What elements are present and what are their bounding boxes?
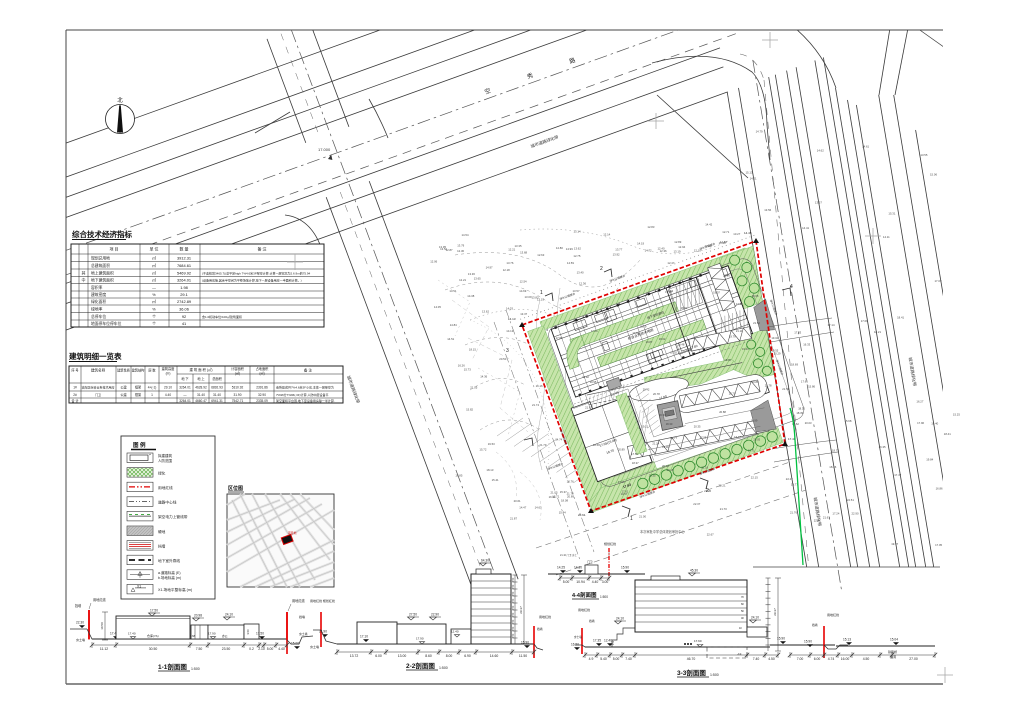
svg-text:2391.86: 2391.86 xyxy=(256,386,268,390)
svg-text:22.90: 22.90 xyxy=(431,613,439,617)
svg-text:12.63: 12.63 xyxy=(537,253,544,257)
svg-text:挡墙: 挡墙 xyxy=(589,619,595,623)
svg-text:3.50: 3.50 xyxy=(513,577,515,582)
svg-text:19.79: 19.79 xyxy=(729,335,736,339)
svg-text:19.53: 19.53 xyxy=(488,442,495,446)
svg-text:13.40: 13.40 xyxy=(577,271,584,275)
svg-text:20.73: 20.73 xyxy=(662,464,669,468)
svg-text:绿化面积: 绿化面积 xyxy=(91,299,106,304)
svg-text:序 号: 序 号 xyxy=(71,368,78,373)
svg-text:21.16: 21.16 xyxy=(701,466,708,470)
svg-text:16.00: 16.00 xyxy=(841,657,850,661)
svg-text:4F: 4F xyxy=(741,616,744,620)
svg-text:11.50: 11.50 xyxy=(519,654,527,658)
svg-text:1: 1 xyxy=(540,290,543,296)
svg-text:20.70: 20.70 xyxy=(729,392,736,396)
svg-text:个: 个 xyxy=(152,314,156,319)
svg-text:13.62: 13.62 xyxy=(482,310,489,314)
svg-text:4.50: 4.50 xyxy=(863,657,870,661)
svg-text:1-1剖面图: 1-1剖面图 xyxy=(158,662,187,671)
svg-text:(㎡): (㎡) xyxy=(259,371,264,376)
svg-text:17.55: 17.55 xyxy=(700,436,707,440)
svg-text:3.50: 3.50 xyxy=(513,626,515,631)
svg-text:5.00: 5.00 xyxy=(613,657,620,661)
svg-text:20.03: 20.03 xyxy=(805,421,812,425)
svg-text:含1.0机动车位/100㎡建筑面积: 含1.0机动车位/100㎡建筑面积 xyxy=(202,314,242,319)
svg-text:14.88: 14.88 xyxy=(720,240,727,244)
svg-text:用地红线: 用地红线 xyxy=(292,598,306,603)
svg-text:17.47: 17.47 xyxy=(734,435,741,439)
svg-text:14.13: 14.13 xyxy=(506,329,513,333)
svg-text:20.68: 20.68 xyxy=(752,294,759,298)
svg-text:10.94: 10.94 xyxy=(576,580,585,584)
svg-text:29.1: 29.1 xyxy=(180,292,188,297)
svg-text:15.86: 15.86 xyxy=(808,385,815,389)
svg-text:20.35: 20.35 xyxy=(694,424,701,428)
svg-text:1:500: 1:500 xyxy=(710,673,719,677)
svg-text:19.07: 19.07 xyxy=(713,291,720,295)
svg-text:21.63: 21.63 xyxy=(723,274,730,278)
svg-text:13.76: 13.76 xyxy=(506,261,513,265)
svg-text:a.道路标高 (E): a.道路标高 (E) xyxy=(158,570,181,575)
svg-text:14.62: 14.62 xyxy=(817,149,824,153)
svg-text:建 筑 面 积 (㎡): 建 筑 面 积 (㎡) xyxy=(190,367,213,372)
svg-text:16.33: 16.33 xyxy=(803,343,810,347)
svg-text:18.46: 18.46 xyxy=(829,465,836,469)
svg-text:19.30: 19.30 xyxy=(662,445,669,449)
svg-text:19.95: 19.95 xyxy=(590,380,597,384)
svg-text:17.64: 17.64 xyxy=(591,329,598,333)
svg-text:21.78: 21.78 xyxy=(765,383,772,387)
svg-text:17.24: 17.24 xyxy=(832,512,839,516)
svg-text:会所建成共7%4.6米3F小房,主体一层架空为: 会所建成共7%4.6米3F小房,主体一层架空为 xyxy=(276,385,334,390)
svg-text:(设备用房等,其余半空间为平整场地计算,地下一层设备用房一半: (设备用房等,其余半空间为平整场地计算,地下一层设备用房一半面积计算。) xyxy=(202,278,302,283)
svg-text:(不含核增3465.7)(总平定high 7%4.6米3F架: (不含核增3465.7)(总平定high 7%4.6米3F架空计算,计算一层空高… xyxy=(202,270,311,275)
svg-text:64.30: 64.30 xyxy=(481,559,489,563)
svg-text:单 位: 单 位 xyxy=(149,246,158,252)
svg-text:21.51: 21.51 xyxy=(782,387,789,391)
svg-text:14.25: 14.25 xyxy=(557,566,565,570)
svg-text:—: — xyxy=(152,286,156,290)
svg-text:综合技术经济指标: 综合技术经济指标 xyxy=(72,229,132,239)
svg-text:18.39: 18.39 xyxy=(796,411,803,415)
svg-text:挡墙: 挡墙 xyxy=(812,623,818,627)
svg-text:建筑名称: 建筑名称 xyxy=(91,368,106,373)
svg-text:13.72: 13.72 xyxy=(350,654,359,658)
svg-text:19.55: 19.55 xyxy=(772,348,779,352)
svg-text:3: 3 xyxy=(506,348,509,354)
svg-text:12.36: 12.36 xyxy=(660,249,667,253)
svg-text:31.40: 31.40 xyxy=(197,393,205,397)
svg-text:19.62: 19.62 xyxy=(659,337,666,341)
svg-text:13.71: 13.71 xyxy=(552,495,559,499)
svg-text:15.90: 15.90 xyxy=(777,637,785,641)
svg-text:3264.01: 3264.01 xyxy=(179,386,191,390)
svg-text:14.74: 14.74 xyxy=(555,438,562,442)
svg-text:4+(-1): 4+(-1) xyxy=(148,386,157,390)
svg-text:12.18: 12.18 xyxy=(503,268,510,272)
svg-text:总停车位: 总停车位 xyxy=(91,314,106,319)
svg-text:其: 其 xyxy=(82,270,86,275)
svg-text:14.99: 14.99 xyxy=(566,247,573,251)
svg-text:17.71: 17.71 xyxy=(748,448,755,452)
svg-text:项 目: 项 目 xyxy=(109,246,118,252)
svg-text:地下室外廓线: 地下室外廓线 xyxy=(158,558,180,563)
svg-text:15.82: 15.82 xyxy=(466,408,473,412)
svg-text:6892.93: 6892.93 xyxy=(211,386,223,390)
svg-text:2742.89: 2742.89 xyxy=(177,299,191,304)
svg-text:7F: 7F xyxy=(741,595,744,599)
svg-text:18.69: 18.69 xyxy=(791,363,798,367)
svg-text:16.50: 16.50 xyxy=(571,643,579,647)
svg-text:32.90: 32.90 xyxy=(258,393,266,397)
svg-text:挡墙: 挡墙 xyxy=(537,627,543,631)
svg-text:19.92: 19.92 xyxy=(582,375,589,379)
svg-text:13.57: 13.57 xyxy=(815,200,822,204)
svg-text:5F: 5F xyxy=(741,609,744,613)
svg-text:2-2剖面图: 2-2剖面图 xyxy=(406,661,435,670)
svg-text:12.14: 12.14 xyxy=(603,233,610,237)
svg-text:13.79: 13.79 xyxy=(457,243,464,247)
svg-text:(㎡): (㎡) xyxy=(235,371,240,376)
svg-text:27.00: 27.00 xyxy=(909,657,918,661)
svg-text:4.40: 4.40 xyxy=(165,393,171,397)
svg-text:备 注: 备 注 xyxy=(304,368,313,373)
svg-text:门卫: 门卫 xyxy=(95,392,101,397)
svg-text:6.00: 6.00 xyxy=(375,654,382,658)
svg-text:17.63: 17.63 xyxy=(632,331,639,335)
svg-text:13.36: 13.36 xyxy=(468,272,475,276)
svg-text:3.50: 3.50 xyxy=(513,605,515,610)
svg-text:17.35: 17.35 xyxy=(593,639,601,643)
svg-text:道路中心线: 道路中心线 xyxy=(158,500,177,505)
svg-text:17.47: 17.47 xyxy=(894,473,901,477)
svg-text:20.76: 20.76 xyxy=(567,479,574,483)
svg-text:建筑结构: 建筑结构 xyxy=(132,368,145,373)
svg-text:15.68: 15.68 xyxy=(844,419,851,423)
svg-text:中: 中 xyxy=(82,277,86,283)
svg-text:规划红线: 规划红线 xyxy=(604,541,616,546)
svg-text:1.98: 1.98 xyxy=(180,285,188,290)
svg-text:36.06: 36.06 xyxy=(179,306,189,311)
svg-text:14.84: 14.84 xyxy=(450,323,457,327)
svg-text:7684.61: 7684.61 xyxy=(177,263,191,268)
svg-text:24.10: 24.10 xyxy=(616,617,624,621)
svg-text:2#: 2# xyxy=(73,393,77,397)
svg-text:15.90: 15.90 xyxy=(804,640,812,644)
svg-text:22.15: 22.15 xyxy=(751,476,758,480)
svg-text:7.50: 7.50 xyxy=(196,647,203,651)
svg-text:地上建筑面积: 地上建筑面积 xyxy=(91,270,114,275)
svg-text:13.56: 13.56 xyxy=(764,208,771,212)
svg-text:14.45: 14.45 xyxy=(744,231,752,235)
svg-text:15.90: 15.90 xyxy=(521,641,529,645)
svg-text:占地面积: 占地面积 xyxy=(256,366,270,371)
svg-text:21.11: 21.11 xyxy=(736,329,743,333)
svg-text:容积率: 容积率 xyxy=(91,285,103,290)
svg-text:19.01: 19.01 xyxy=(742,347,749,351)
svg-text:夯土墙: 夯土墙 xyxy=(76,637,85,642)
svg-text:22.37: 22.37 xyxy=(693,502,700,506)
svg-text:12.80: 12.80 xyxy=(556,246,563,250)
svg-text:18.35: 18.35 xyxy=(798,407,805,411)
svg-text:18.48: 18.48 xyxy=(678,343,685,347)
svg-text:15.84: 15.84 xyxy=(559,511,566,515)
svg-text:用地红线: 用地红线 xyxy=(539,614,551,619)
svg-text:31.40: 31.40 xyxy=(213,393,221,397)
svg-text:19.57: 19.57 xyxy=(621,492,628,496)
svg-text:21.10 门卫 夯土: 21.10 门卫 夯土 xyxy=(560,553,577,557)
svg-text:22.51: 22.51 xyxy=(847,498,854,502)
svg-text:41: 41 xyxy=(182,321,186,326)
svg-text:13.62: 13.62 xyxy=(574,246,581,250)
svg-text:6941.31: 6941.31 xyxy=(211,399,223,403)
svg-text:12.54: 12.54 xyxy=(520,280,527,284)
svg-text:17.06: 17.06 xyxy=(861,319,868,323)
svg-text:15.13: 15.13 xyxy=(843,638,851,642)
svg-text:4.74: 4.74 xyxy=(828,657,835,661)
svg-text:13.14: 13.14 xyxy=(574,229,581,233)
svg-text:20.89: 20.89 xyxy=(618,448,625,452)
svg-text:18.30: 18.30 xyxy=(666,422,673,426)
svg-text:21.70: 21.70 xyxy=(720,507,727,511)
svg-text:b.场地标高 (m): b.场地标高 (m) xyxy=(158,575,181,580)
svg-text:22.41: 22.41 xyxy=(814,518,821,522)
svg-text:3.50: 3.50 xyxy=(513,591,515,596)
svg-text:㎡: ㎡ xyxy=(152,270,156,275)
svg-text:2335.09: 2335.09 xyxy=(256,399,268,403)
svg-text:油车区综合业务技术用房: 油车区综合业务技术用房 xyxy=(81,385,114,390)
svg-text:规划总用地: 规划总用地 xyxy=(91,255,110,260)
svg-text:12.06: 12.06 xyxy=(430,259,437,263)
svg-text:10.50: 10.50 xyxy=(100,622,104,630)
svg-text:本次审批中学总体规划审批中心: 本次审批中学总体规划审批中心 xyxy=(640,529,685,534)
svg-text:用地红线: 用地红线 xyxy=(578,607,590,612)
svg-text:46.70: 46.70 xyxy=(687,657,696,661)
svg-text:17.50: 17.50 xyxy=(150,609,158,613)
svg-text:14.97: 14.97 xyxy=(486,266,493,270)
svg-text:31.90: 31.90 xyxy=(234,393,242,397)
svg-text:21.87: 21.87 xyxy=(510,517,517,521)
svg-text:12.40: 12.40 xyxy=(604,639,612,643)
svg-text:3264.01: 3264.01 xyxy=(179,399,191,403)
svg-text:框架: 框架 xyxy=(135,392,142,397)
svg-text:19.63: 19.63 xyxy=(666,289,673,293)
svg-text:21.76: 21.76 xyxy=(790,511,797,515)
svg-text:14.60: 14.60 xyxy=(490,654,499,658)
svg-text:18.15: 18.15 xyxy=(469,347,476,351)
svg-text:12.47: 12.47 xyxy=(667,261,674,265)
svg-text:19.87: 19.87 xyxy=(646,340,653,344)
svg-text:17.05: 17.05 xyxy=(935,543,942,547)
svg-text:21.63: 21.63 xyxy=(823,515,830,519)
svg-text:挡墙: 挡墙 xyxy=(299,614,305,619)
svg-text:20.89: 20.89 xyxy=(752,380,759,384)
svg-text:14.54: 14.54 xyxy=(462,233,469,237)
svg-text:3.50: 3.50 xyxy=(246,629,250,635)
svg-text:(m): (m) xyxy=(166,372,171,376)
svg-text:20.42: 20.42 xyxy=(643,388,650,392)
svg-text:15.73: 15.73 xyxy=(464,368,471,372)
svg-text:20.05: 20.05 xyxy=(753,437,760,441)
svg-text:3.50: 3.50 xyxy=(513,584,515,589)
svg-text:22.90: 22.90 xyxy=(852,511,859,515)
svg-text:20.78: 20.78 xyxy=(653,392,660,396)
svg-text:24.10: 24.10 xyxy=(225,613,233,617)
svg-text:22.67: 22.67 xyxy=(707,533,714,537)
svg-text:4628.92: 4628.92 xyxy=(195,386,207,390)
svg-text:23.50: 23.50 xyxy=(222,647,231,651)
svg-text:18.85: 18.85 xyxy=(455,474,462,478)
svg-text:45.30: 45.30 xyxy=(690,569,698,573)
svg-text:架空面积平台围,地下室设备用房除一半计算.: 架空面积平台围,地下室设备用房除一半计算. xyxy=(276,398,335,403)
svg-text:15.06: 15.06 xyxy=(291,642,299,646)
svg-text:14.79: 14.79 xyxy=(756,130,763,134)
svg-text:12.30: 12.30 xyxy=(457,249,464,253)
svg-text:14.38: 14.38 xyxy=(467,294,474,298)
svg-text:16.27: 16.27 xyxy=(916,399,923,403)
svg-text:1:500: 1:500 xyxy=(600,595,608,599)
svg-text:13.55: 13.55 xyxy=(920,153,927,157)
svg-text:20.61: 20.61 xyxy=(578,513,586,517)
svg-text:24.10: 24.10 xyxy=(751,616,759,620)
svg-text:用地红线: 用地红线 xyxy=(827,612,839,617)
svg-text:总建筑面积: 总建筑面积 xyxy=(91,263,110,268)
svg-text:19.34: 19.34 xyxy=(771,336,778,340)
svg-text:18.36: 18.36 xyxy=(724,358,731,362)
svg-text:14.13: 14.13 xyxy=(508,317,516,321)
svg-text:13.37: 13.37 xyxy=(520,312,527,316)
svg-text:18.79: 18.79 xyxy=(640,325,647,329)
svg-text:4: 4 xyxy=(790,284,793,290)
svg-text:建筑密度: 建筑密度 xyxy=(91,292,106,297)
svg-text:14.01: 14.01 xyxy=(750,176,757,180)
svg-text:13.83: 13.83 xyxy=(532,296,539,300)
svg-text:12.75: 12.75 xyxy=(573,254,580,258)
svg-text:13.77: 13.77 xyxy=(615,247,622,251)
svg-text:3.50: 3.50 xyxy=(513,633,515,638)
svg-text:20.77: 20.77 xyxy=(670,436,677,440)
svg-text:17.50: 17.50 xyxy=(256,632,264,636)
svg-text:15.06: 15.06 xyxy=(930,173,937,177)
svg-text:16.86: 16.86 xyxy=(936,487,943,491)
svg-text:17.40: 17.40 xyxy=(128,632,136,636)
svg-text:15.31: 15.31 xyxy=(888,212,895,216)
svg-text:地下建筑面积: 地下建筑面积 xyxy=(91,278,114,283)
svg-text:挡墙: 挡墙 xyxy=(158,543,166,548)
svg-text:14.72: 14.72 xyxy=(645,248,652,252)
svg-text:夯土墙: 夯土墙 xyxy=(310,644,319,649)
svg-text:8.00: 8.00 xyxy=(446,654,453,658)
svg-text:7.40: 7.40 xyxy=(625,657,632,661)
svg-text:17.10: 17.10 xyxy=(360,635,368,639)
svg-text:3-3剖面图: 3-3剖面图 xyxy=(677,668,706,677)
svg-text:㎡: ㎡ xyxy=(152,299,156,304)
svg-text:1:500: 1:500 xyxy=(191,667,200,671)
svg-text:5310.92: 5310.92 xyxy=(232,386,244,390)
svg-text:20.50: 20.50 xyxy=(499,357,506,361)
svg-text:数 量: 数 量 xyxy=(179,246,188,252)
svg-text:17.14: 17.14 xyxy=(828,323,835,327)
svg-text:7.68: 7.68 xyxy=(190,634,196,638)
svg-text:6.90: 6.90 xyxy=(464,654,471,658)
svg-text:个: 个 xyxy=(152,321,156,326)
svg-text:3264.01: 3264.01 xyxy=(177,278,191,283)
svg-text:公建: 公建 xyxy=(120,392,127,397)
svg-text:4.40: 4.40 xyxy=(592,580,599,584)
svg-text:13.51: 13.51 xyxy=(449,289,456,293)
svg-text:㎡: ㎡ xyxy=(152,255,156,260)
svg-text:3.50: 3.50 xyxy=(513,619,515,624)
svg-text:4.9: 4.9 xyxy=(589,657,594,661)
svg-text:3912.31: 3912.31 xyxy=(177,255,191,260)
svg-text:2: 2 xyxy=(706,488,709,494)
svg-text:18.21: 18.21 xyxy=(874,330,881,334)
svg-text:17.35: 17.35 xyxy=(670,350,677,354)
svg-text:17.80: 17.80 xyxy=(556,336,563,340)
svg-text:计容面积: 计容面积 xyxy=(231,366,245,371)
svg-text:合 计: 合 计 xyxy=(71,398,79,403)
svg-text:12.89: 12.89 xyxy=(674,240,681,244)
svg-text:17.59: 17.59 xyxy=(631,452,638,456)
svg-text:20.59: 20.59 xyxy=(659,413,666,417)
svg-text:22.30: 22.30 xyxy=(76,621,84,625)
svg-text:18.13: 18.13 xyxy=(486,468,493,472)
svg-text:29.10: 29.10 xyxy=(164,386,172,390)
svg-text:㎡: ㎡ xyxy=(152,263,156,268)
svg-text:15.90: 15.90 xyxy=(621,566,629,570)
svg-text:15.13: 15.13 xyxy=(746,171,753,175)
svg-text:16.26: 16.26 xyxy=(458,364,465,368)
svg-text:13.65: 13.65 xyxy=(474,277,481,281)
svg-text:图 例: 图 例 xyxy=(133,441,146,449)
svg-text:18.59: 18.59 xyxy=(593,443,600,447)
svg-text:17.60: 17.60 xyxy=(694,639,702,643)
svg-text:13.68: 13.68 xyxy=(520,250,527,254)
svg-text:2.10: 2.10 xyxy=(258,647,265,651)
svg-text:21.24: 21.24 xyxy=(652,442,659,446)
svg-text:15.04: 15.04 xyxy=(890,638,898,642)
svg-text:7.40: 7.40 xyxy=(753,657,760,661)
svg-text:18.75: 18.75 xyxy=(832,448,839,452)
svg-text:14.41: 14.41 xyxy=(802,226,809,230)
svg-text:19.40: 19.40 xyxy=(931,421,938,425)
svg-text:夯土墙: 夯土墙 xyxy=(299,632,308,636)
svg-text:1: 1 xyxy=(151,393,153,397)
svg-text:14.19: 14.19 xyxy=(637,242,644,246)
svg-text:12.40: 12.40 xyxy=(451,630,459,634)
svg-text:17.90: 17.90 xyxy=(208,632,216,636)
svg-text:1:500: 1:500 xyxy=(439,666,448,670)
svg-text:仓库(7A): 仓库(7A) xyxy=(147,633,159,638)
svg-text:13.27: 13.27 xyxy=(733,232,740,236)
svg-text:人防范围: 人防范围 xyxy=(158,458,172,463)
svg-text:14.05: 14.05 xyxy=(434,305,441,309)
svg-text:4.40: 4.40 xyxy=(278,647,285,651)
svg-text:建筑高度: 建筑高度 xyxy=(162,366,176,371)
svg-text:29.37: 29.37 xyxy=(773,608,777,616)
svg-text:17.96: 17.96 xyxy=(917,421,924,425)
svg-text:20.88: 20.88 xyxy=(719,410,726,414)
svg-text:绿地率: 绿地率 xyxy=(91,306,103,311)
svg-text:17.33: 17.33 xyxy=(794,331,801,335)
svg-text:16.35: 16.35 xyxy=(879,445,886,449)
svg-text:办公: 办公 xyxy=(222,634,228,638)
svg-text:用地红线: 用地红线 xyxy=(93,597,107,602)
svg-text:12.71: 12.71 xyxy=(722,230,729,234)
svg-text:X1: X1 xyxy=(137,584,141,588)
svg-text:北: 北 xyxy=(117,96,123,104)
